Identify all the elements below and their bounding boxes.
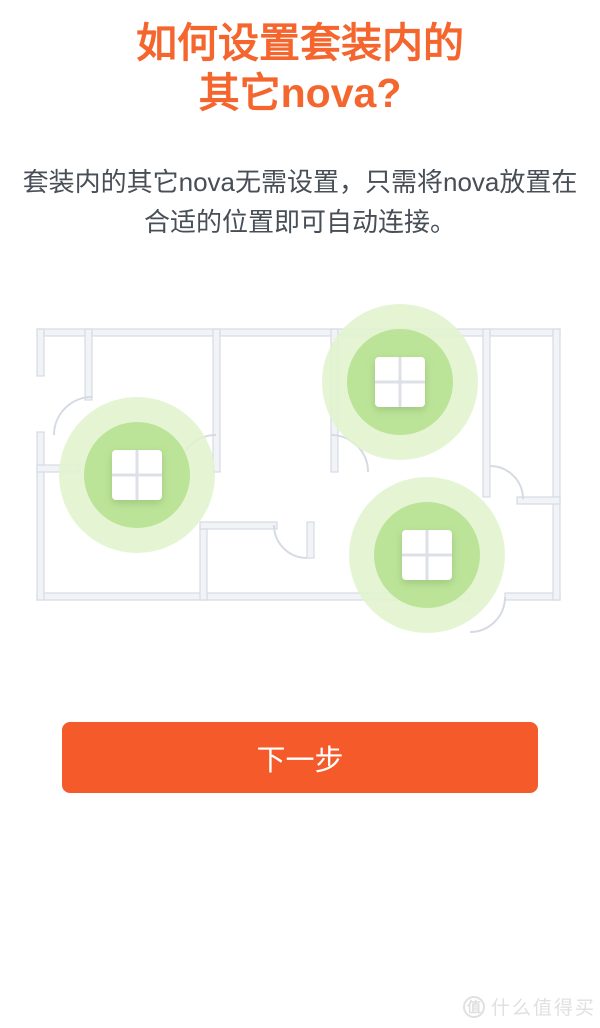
watermark-text: 什么值得买: [491, 993, 596, 1020]
smzdm-logo-icon: 值: [463, 996, 485, 1018]
setup-screen: 如何设置套装内的 其它nova? 套装内的其它nova无需设置，只需将nova放…: [0, 0, 600, 1028]
wall-top: [37, 329, 560, 336]
nova-left: [59, 397, 215, 553]
wall-v1: [85, 329, 92, 400]
watermark: 值 什么值得买: [463, 993, 596, 1020]
wall-v6: [200, 529, 207, 600]
next-step-button[interactable]: 下一步: [62, 722, 538, 793]
nova-bottom-right: [349, 477, 505, 633]
wall-v2: [213, 329, 220, 472]
page-title-line1: 如何设置套装内的: [0, 18, 600, 68]
wall-bottom-right: [505, 593, 560, 600]
page-title: 如何设置套装内的 其它nova?: [0, 18, 600, 118]
wall-h2: [200, 522, 277, 529]
floorplan-svg: [0, 302, 600, 642]
instruction-text: 套装内的其它nova无需设置，只需将nova放置在合适的位置即可自动连接。: [0, 162, 600, 242]
wall-left-lower: [37, 432, 44, 600]
wall-right: [553, 329, 560, 600]
page-title-line2: 其它nova?: [0, 68, 600, 118]
door-arc-hall: [490, 466, 523, 499]
door-arc-lower-mid: [274, 525, 307, 558]
wall-v4: [483, 329, 490, 497]
floorplan-illustration: [0, 302, 600, 642]
wall-v5: [307, 522, 314, 558]
nova-top-right: [322, 304, 478, 460]
wall-left-upper: [37, 329, 44, 376]
